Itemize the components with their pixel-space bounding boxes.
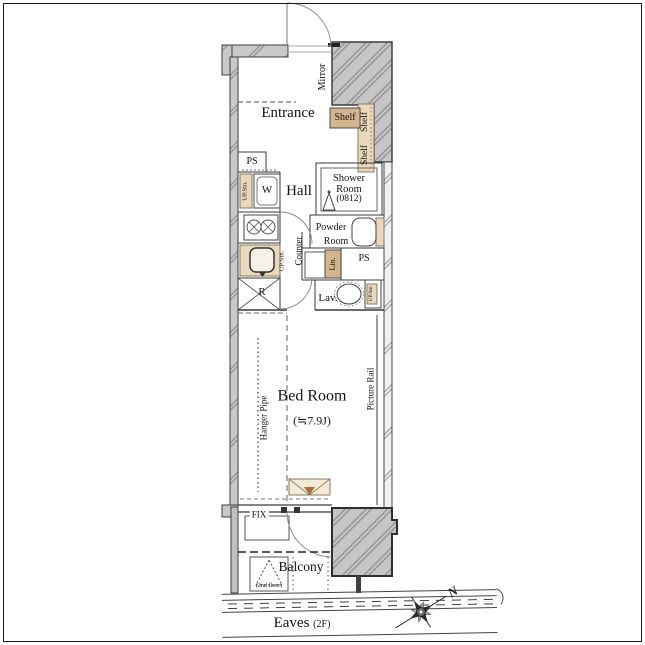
shower-room-size: (0812) (336, 195, 361, 205)
right-wall (384, 162, 392, 508)
refrigerator-label: R (258, 287, 265, 299)
evac-hatch-note: (2nd floor) (256, 583, 282, 589)
ps-right-label: PS (358, 254, 369, 265)
shelf-side-lower-label: Shelf (361, 145, 371, 165)
sink-icon (250, 248, 274, 272)
lavatory-label: Lav. (318, 293, 337, 305)
mirror-label: Mirror (318, 64, 329, 91)
floor-plan-canvas: N Entrance Mirror Shelf Shelf Shelf PS U… (0, 0, 645, 645)
balcony-door-arc (287, 512, 332, 557)
balcony-label: Balcony (279, 560, 324, 574)
shower-icon (323, 193, 335, 210)
washer-storage-label: UP.Stn. (243, 181, 250, 201)
balcony-left-post (231, 507, 238, 593)
corridor-door-arc (280, 277, 312, 309)
floor-plan-drawing: N (0, 0, 645, 645)
hall-label: Hall (286, 184, 312, 200)
powder-room-label-1: Powder (316, 223, 347, 234)
eaves-label: Eaves (2F) (274, 616, 331, 632)
eaves-text: Eaves (274, 615, 310, 631)
entrance-door (287, 3, 331, 52)
eaves-area (222, 588, 504, 637)
left-wall (230, 57, 238, 507)
toilet-bowl-icon (337, 284, 361, 304)
bottom-right-wall-block (332, 508, 397, 576)
compass-north-label: N (444, 582, 461, 601)
powder-room-label-2: Room (324, 237, 348, 248)
toilet-storage-label: UP.Stn (369, 286, 375, 301)
vanity-sink-icon (352, 218, 376, 246)
counter-label: Counter (294, 237, 303, 266)
hanger-pipe-label: Hanger Pipe (259, 396, 268, 441)
bed-room-label: Bed Room (278, 389, 347, 406)
ps-left-label: PS (246, 157, 257, 168)
shelf-side-upper-label: Shelf (361, 112, 371, 132)
picture-rail-label: Picture Rail (366, 368, 375, 411)
eaves-end-hook (497, 588, 504, 604)
fix-window-label: FIX (250, 510, 269, 519)
bed-room-size: (≒7.9J) (293, 415, 331, 428)
linen-label: Lin. (329, 257, 337, 270)
kitchen-storage-label: UP/Stn. (280, 251, 287, 271)
eaves-floor-text: (2F) (313, 619, 330, 630)
balcony-right-post (356, 576, 361, 593)
washer-label: W (262, 185, 272, 197)
entrance-door-arc (287, 3, 331, 47)
shelf-top-label: Shelf (334, 113, 355, 124)
entrance-label: Entrance (261, 106, 314, 122)
shower-room-label: Shower Room (322, 173, 376, 195)
vanity-strip (376, 218, 384, 246)
